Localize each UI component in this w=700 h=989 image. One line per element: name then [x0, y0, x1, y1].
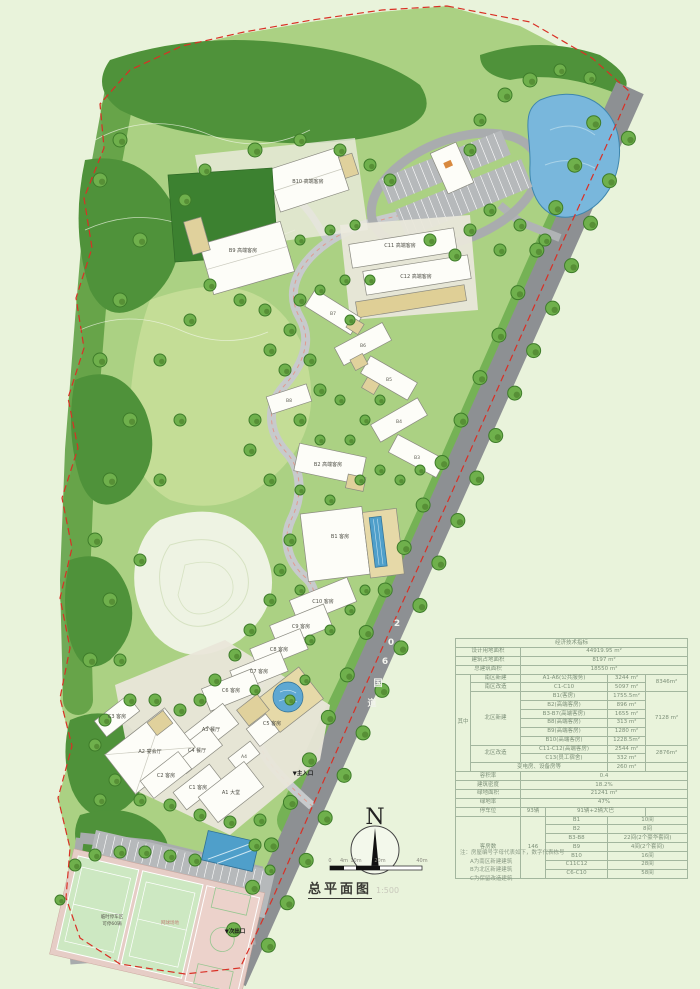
tree-icon — [360, 415, 370, 425]
tree-icon — [139, 846, 151, 858]
row-label: 绿地面积 — [456, 789, 521, 798]
tree-icon — [527, 344, 541, 358]
tree-icon — [345, 435, 355, 445]
tree-icon — [174, 414, 186, 426]
row-value: 18550 m² — [521, 665, 688, 674]
rooms-item-name: B3-B8 — [546, 834, 608, 843]
tree-icon — [113, 133, 127, 147]
tree-icon — [384, 174, 396, 186]
among-area: 1755.5m² — [608, 692, 646, 701]
label-a4: A4 — [241, 754, 247, 760]
tree-icon — [340, 668, 354, 682]
row-value: 0.4 — [521, 772, 688, 781]
tree-icon — [103, 473, 117, 487]
tree-icon — [474, 114, 486, 126]
tree-icon — [359, 625, 373, 639]
label-b6: B6 — [360, 343, 366, 349]
tree-icon — [284, 324, 296, 336]
row-label: 设计用地面积 — [456, 647, 521, 656]
tree-icon — [179, 194, 191, 206]
tree-icon — [149, 694, 161, 706]
tree-icon — [249, 414, 261, 426]
label-b3: B3 — [414, 455, 420, 461]
tree-icon — [364, 159, 376, 171]
among-area: 313 m² — [608, 718, 646, 727]
tree-icon — [334, 144, 346, 156]
tree-icon — [295, 585, 305, 595]
tree-icon — [249, 839, 261, 851]
tree-icon — [94, 794, 106, 806]
among-name: C1-C10 — [521, 683, 608, 692]
label-court: 网球场地 — [161, 919, 179, 926]
tree-icon — [432, 556, 446, 570]
tree-icon — [318, 811, 332, 825]
row-label: 总建筑面积 — [456, 665, 521, 674]
tree-icon — [416, 498, 430, 512]
main-entrance-marker: ▼主入口 — [293, 769, 314, 777]
row-value: 44919.95 m² — [521, 647, 688, 656]
among-label: 其中 — [456, 674, 471, 772]
scale-tick-10m: 10m — [350, 858, 361, 864]
scale-tick-20m: 20m — [374, 858, 385, 864]
among-subtotal: 7128 m² — [646, 692, 688, 745]
title-block: 总平面图1:500 — [308, 878, 399, 897]
among-cat: 北区改造 — [471, 745, 521, 763]
table-title: 经济技术指标 — [456, 639, 688, 648]
tree-icon — [365, 275, 375, 285]
tree-icon — [375, 395, 385, 405]
label-a1: A1 大堂 — [222, 789, 240, 796]
note-line: 注：房屋编号字母代表如下，数字代表栋号 — [460, 849, 565, 858]
label-b7: B7 — [330, 311, 336, 317]
among-name: B9(高端客房) — [521, 727, 608, 736]
legend-notes: 注：房屋编号字母代表如下，数字代表栋号 A为南区新建建筑 B为北区新建建筑 C为… — [460, 849, 565, 883]
row-label: 建筑密度 — [456, 781, 521, 790]
parking-label: 停车位 — [456, 807, 521, 816]
drawing-scale: 1:500 — [376, 886, 399, 895]
tree-icon — [283, 795, 297, 809]
among-area: 260 m² — [608, 763, 646, 772]
tree-icon — [568, 158, 582, 172]
tree-icon — [514, 219, 526, 231]
tree-icon — [114, 846, 126, 858]
tree-icon — [489, 429, 503, 443]
tree-icon — [250, 685, 260, 695]
tree-icon — [350, 220, 360, 230]
tree-icon — [294, 134, 306, 146]
row-label: 建筑占地面积 — [456, 656, 521, 665]
row-value: 47% — [521, 798, 688, 807]
tree-icon — [154, 474, 166, 486]
tree-icon — [498, 88, 512, 102]
tree-icon — [259, 304, 271, 316]
tree-icon — [294, 414, 306, 426]
label-c8: C8 客房 — [270, 646, 288, 653]
tree-icon — [511, 286, 525, 300]
tree-icon — [114, 654, 126, 666]
parking-detail: 91辆+2辆大巴 — [546, 807, 646, 816]
tree-icon — [415, 465, 425, 475]
tree-icon — [302, 753, 316, 767]
tree-icon — [395, 475, 405, 485]
tree-icon — [394, 641, 408, 655]
among-area: 1280 m² — [608, 727, 646, 736]
tree-icon — [244, 444, 256, 456]
tree-icon — [265, 838, 279, 852]
row-value: 18.2% — [521, 781, 688, 790]
label-b8: B8 — [286, 398, 292, 404]
scale-tick-4m: 4m — [340, 858, 348, 864]
tree-icon — [530, 243, 544, 257]
tree-icon — [184, 314, 196, 326]
tree-icon — [103, 593, 117, 607]
scale-bar-seg — [330, 866, 344, 870]
tree-icon — [305, 635, 315, 645]
tree-icon — [246, 880, 260, 894]
tree-icon — [345, 605, 355, 615]
tree-icon — [315, 435, 325, 445]
among-name: C11-C12(高端客房) — [521, 745, 608, 754]
tree-icon — [435, 456, 449, 470]
note-line: B为北区新建建筑 — [470, 866, 565, 875]
label-b5: B5 — [386, 377, 392, 383]
among-name: B2(高端客房) — [521, 701, 608, 710]
tree-icon — [321, 710, 335, 724]
tree-icon — [449, 249, 461, 261]
among-subtotal: 8346m² — [646, 674, 688, 692]
among-name: C13(员工宿舍) — [521, 754, 608, 763]
tree-icon — [194, 694, 206, 706]
tree-icon — [93, 173, 107, 187]
label-c1: C1 客房 — [189, 784, 207, 791]
tree-icon — [473, 371, 487, 385]
tree-icon — [194, 809, 206, 821]
tree-icon — [83, 653, 97, 667]
label-c11: C11 高端客房 — [384, 242, 415, 249]
among-area: 896 m² — [608, 701, 646, 710]
tree-icon — [583, 216, 597, 230]
tree-icon — [508, 386, 522, 400]
drawing-title: 总平面图 — [308, 882, 372, 899]
tree-icon — [174, 704, 186, 716]
row-value: 21241 m² — [521, 789, 688, 798]
tree-icon — [375, 465, 385, 475]
tree-icon — [294, 294, 306, 306]
tree-icon — [355, 475, 365, 485]
tree-icon — [345, 315, 355, 325]
among-area: 1228.5m² — [608, 736, 646, 745]
tree-icon — [88, 533, 102, 547]
rooms-item-count: 22间(2个豪华套间) — [608, 834, 688, 843]
tree-icon — [164, 850, 176, 862]
tree-icon — [464, 224, 476, 236]
among-area: 2544 m² — [608, 745, 646, 754]
tree-icon — [234, 294, 246, 306]
among-area: 332 m² — [608, 754, 646, 763]
tree-icon — [621, 131, 635, 145]
tree-icon — [279, 364, 291, 376]
tree-icon — [470, 471, 484, 485]
rooms-item-count: 10间 — [608, 816, 688, 825]
tree-icon — [189, 854, 201, 866]
tree-icon — [335, 395, 345, 405]
among-name: A1-A6(公共服务) — [521, 674, 608, 683]
label-c6: C6 客房 — [222, 687, 240, 694]
tree-icon — [602, 174, 616, 188]
label-c10: C10 客房 — [312, 598, 333, 605]
tree-icon — [124, 694, 136, 706]
road-name-char-0: 0 — [388, 638, 394, 648]
label-b4: B4 — [396, 419, 402, 425]
rooms-item-count: 16间 — [608, 852, 688, 861]
label-c2: C2 客房 — [157, 772, 175, 779]
label-c3: C3 客房 — [108, 713, 126, 720]
tree-icon — [314, 384, 326, 396]
tree-icon — [248, 143, 262, 157]
tree-icon — [264, 594, 276, 606]
among-area: 3244 m² — [608, 674, 646, 683]
rooms-item-count: 28间 — [608, 860, 688, 869]
label-c4: C4 餐厅 — [188, 747, 206, 754]
tree-icon — [164, 799, 176, 811]
tree-icon — [123, 413, 137, 427]
parking-empty — [646, 807, 688, 816]
tree-icon — [484, 204, 496, 216]
tree-icon — [304, 354, 316, 366]
tree-icon — [451, 514, 465, 528]
rooms-item-name: B1 — [546, 816, 608, 825]
note-line: A为南区新建建筑 — [470, 858, 565, 867]
tree-icon — [204, 279, 216, 291]
label-c7: C7 客房 — [250, 668, 268, 675]
tree-icon — [209, 674, 221, 686]
tree-icon — [340, 275, 350, 285]
rooms-item-name: B2 — [546, 825, 608, 834]
among-name: B10(高端客房) — [521, 736, 608, 745]
label-a3: A3 餐厅 — [202, 726, 220, 733]
label-b10: B10 高端客房 — [292, 178, 323, 185]
tree-icon — [154, 354, 166, 366]
label-b1: B1 客房 — [331, 533, 349, 540]
among-subtotal: 2876m² — [646, 745, 688, 763]
tree-icon — [134, 554, 146, 566]
label-temp-parking-2: 可停60辆 — [102, 920, 122, 927]
tree-icon — [199, 164, 211, 176]
tree-icon — [229, 649, 241, 661]
scale-bar-seg — [356, 866, 380, 870]
tree-icon — [337, 768, 351, 782]
tree-icon — [299, 853, 313, 867]
scale-tick-0: 0 — [328, 858, 331, 864]
tree-icon — [89, 849, 101, 861]
label-c9: C9 客房 — [292, 623, 310, 630]
tree-icon — [55, 895, 65, 905]
tree-icon — [285, 695, 295, 705]
rooms-item-count: 4间(2个套间) — [608, 843, 688, 852]
tree-icon — [413, 598, 427, 612]
tree-icon — [244, 624, 256, 636]
tree-icon — [554, 64, 566, 76]
label-a2: A2 宴会厅 — [138, 748, 161, 755]
tree-icon — [325, 225, 335, 235]
tree-icon — [274, 564, 286, 576]
tree-icon — [454, 413, 468, 427]
site-plan-sheet: B10 高端客房 B9 高端客房 C11 高端客房 C12 高端客房 B7 B6… — [0, 0, 700, 989]
rooms-item-count: 58间 — [608, 869, 688, 878]
tree-icon — [494, 244, 506, 256]
building-b1 — [300, 502, 404, 585]
rooms-item-count: 8间 — [608, 825, 688, 834]
secondary-exit-marker: ▼次出口 — [225, 927, 246, 935]
label-c5: C5 客房 — [263, 720, 281, 727]
tree-icon — [261, 938, 275, 952]
label-b2: B2 高端客房 — [314, 461, 342, 468]
tree-icon — [280, 896, 294, 910]
tree-icon — [565, 259, 579, 273]
note-line: C为保留改造建筑 — [470, 875, 565, 884]
row-label: 容积率 — [456, 772, 521, 781]
label-b9: B9 高端客房 — [229, 247, 257, 254]
tree-icon — [360, 585, 370, 595]
tree-icon — [356, 726, 370, 740]
tree-icon — [546, 301, 560, 315]
tree-icon — [587, 116, 601, 130]
label-c12: C12 高端客房 — [400, 273, 431, 280]
tree-icon — [492, 328, 506, 342]
road-name-char-guo: 国 — [373, 678, 382, 689]
parking-total: 93辆 — [521, 807, 546, 816]
among-cat: 南区新建 — [471, 674, 521, 683]
among-cat: 南区改造 — [471, 683, 521, 692]
tree-icon — [89, 739, 101, 751]
tree-icon — [134, 794, 146, 806]
economic-indicator-table: 经济技术指标 设计用地面积 44919.95 m² 建筑占地面积 8197 m²… — [455, 638, 688, 879]
among-name: B1(客房) — [521, 692, 608, 701]
row-value: 8197 m² — [521, 656, 688, 665]
label-temp-parking-1: 临时停车区 — [101, 913, 124, 920]
tree-icon — [325, 625, 335, 635]
among-name: B3-B7(高端客房) — [521, 710, 608, 719]
tree-icon — [113, 293, 127, 307]
tree-icon — [69, 859, 81, 871]
among-subtotal-empty — [646, 763, 688, 772]
tree-icon — [284, 534, 296, 546]
tree-icon — [315, 285, 325, 295]
tree-icon — [264, 344, 276, 356]
tree-icon — [133, 233, 147, 247]
tree-icon — [265, 865, 275, 875]
among-name: B8(高端客房) — [521, 718, 608, 727]
among-area: 1655 m² — [608, 710, 646, 719]
tree-icon — [523, 73, 537, 87]
tree-icon — [224, 816, 236, 828]
row-label: 绿地率 — [456, 798, 521, 807]
among-area: 5097 m² — [608, 683, 646, 692]
road-name-char-6: 6 — [382, 657, 388, 667]
tree-icon — [295, 235, 305, 245]
tree-icon — [264, 474, 276, 486]
tree-icon — [295, 485, 305, 495]
among-cat: 变电房、设备房等 — [471, 763, 608, 772]
tree-icon — [109, 774, 121, 786]
tree-icon — [254, 814, 266, 826]
tree-icon — [549, 201, 563, 215]
tree-icon — [464, 144, 476, 156]
tree-icon — [424, 234, 436, 246]
tree-icon — [378, 583, 392, 597]
tree-icon — [584, 72, 596, 84]
road-name-char-2: 2 — [394, 619, 400, 629]
scale-tick-40m: 40m — [416, 858, 427, 864]
tree-icon — [325, 495, 335, 505]
among-cat: 北区新建 — [471, 692, 521, 745]
tree-icon — [397, 540, 411, 554]
tree-icon — [93, 353, 107, 367]
pond — [528, 94, 620, 217]
tree-icon — [300, 675, 310, 685]
road-name-char-dao: 道 — [367, 697, 376, 709]
